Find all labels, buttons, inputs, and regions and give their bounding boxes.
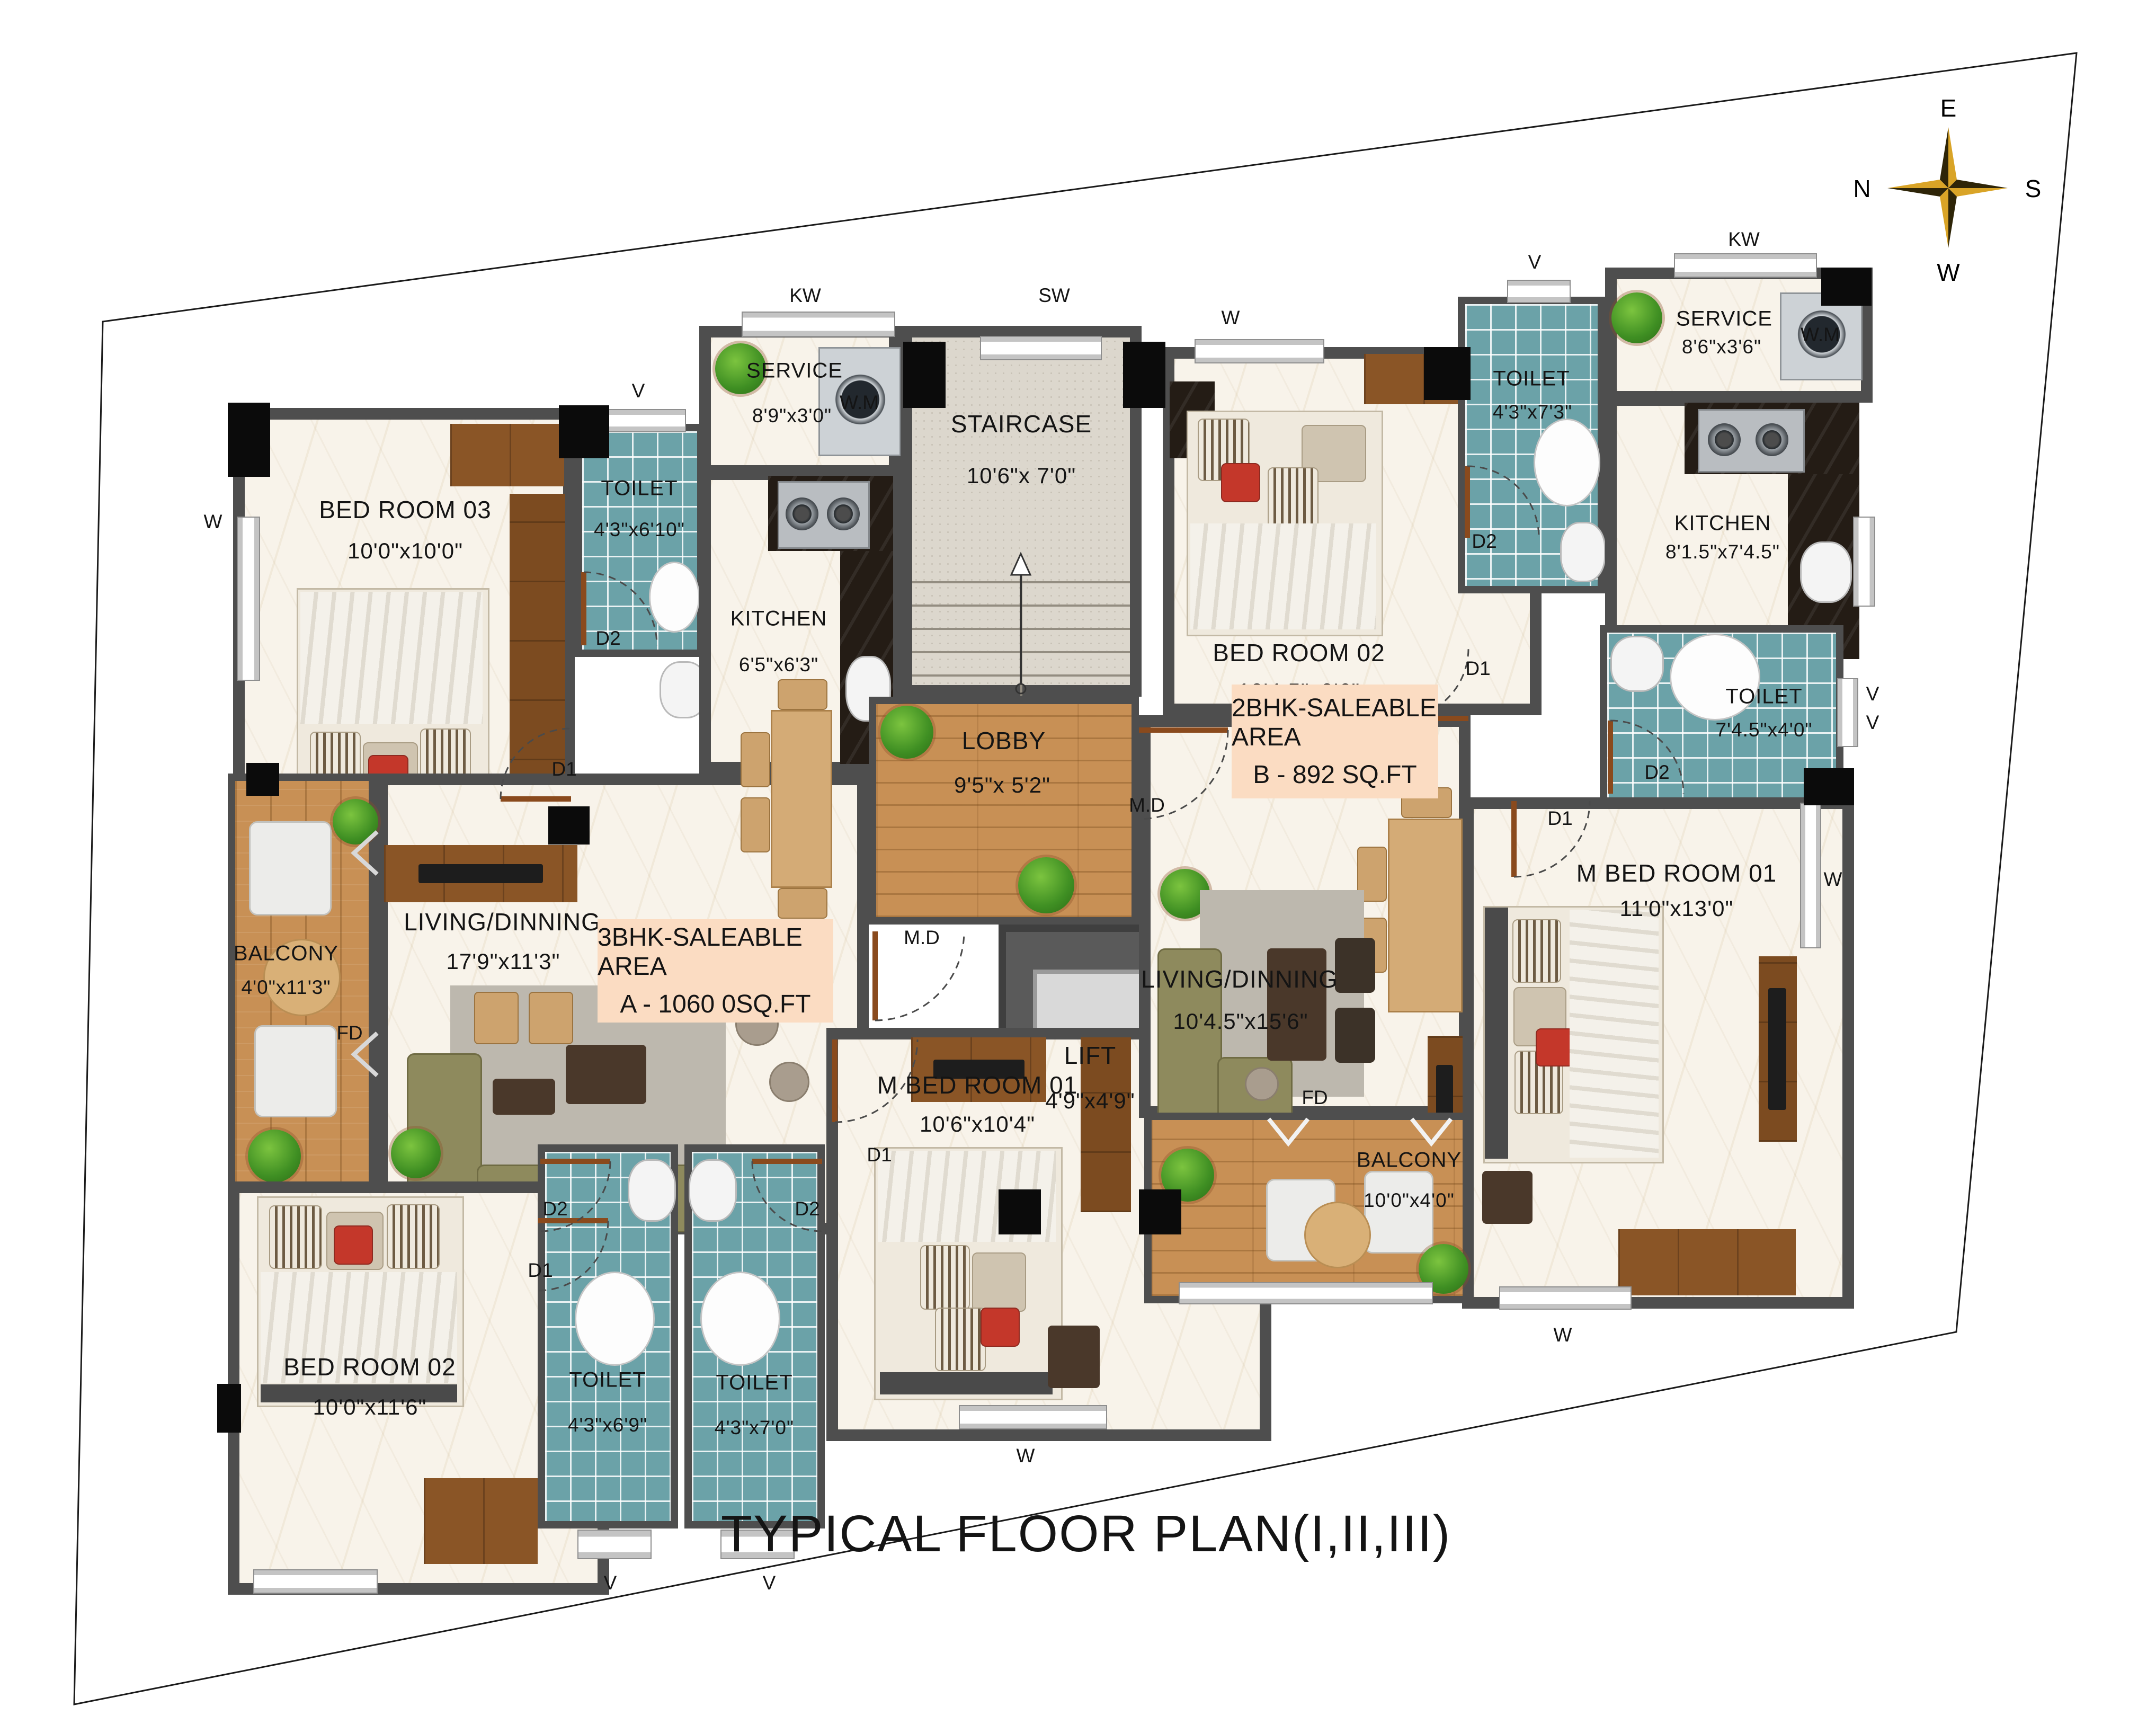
saleable-area-box-3bhk: 3BHK-SALEABLE AREA A - 1060 0SQ.FT xyxy=(598,919,833,1023)
door-tag-d1: D1 xyxy=(1465,657,1490,680)
saleable-area-line: 2BHK-SALEABLE AREA xyxy=(1232,694,1438,752)
room-label: BED ROOM 02 xyxy=(1213,638,1385,667)
door-tag-fd: FD xyxy=(336,1022,362,1044)
washing-machine-tag: W.M xyxy=(1801,324,1840,346)
door-tag-md: M.D xyxy=(904,927,940,949)
room-dims: 6'5"x6'3" xyxy=(739,654,818,676)
window-tag-w: W xyxy=(1017,1445,1035,1467)
room-dims: 4'3"x7'3" xyxy=(1493,401,1572,423)
door-tag-d2: D2 xyxy=(542,1198,567,1220)
vent-tag-v: V xyxy=(763,1572,776,1594)
room-dims: 10'0"x10'0" xyxy=(348,538,463,564)
room-dims: 4'3"x6'9" xyxy=(568,1414,647,1436)
room-dims: 10'6"x10'4" xyxy=(920,1112,1035,1137)
room-label: TOILET xyxy=(1493,367,1570,391)
vent-tag-v: V xyxy=(632,380,645,402)
page-title: TYPICAL FLOOR PLAN(I,II,III) xyxy=(721,1504,1451,1563)
room-label: SERVICE xyxy=(746,359,843,383)
room-label: TOILET xyxy=(1725,685,1802,709)
room-dims: 8'6"x3'6" xyxy=(1682,336,1761,358)
stair-direction-arrow xyxy=(1011,554,1030,694)
vent-tag-v: V xyxy=(1528,251,1542,273)
door-tag-md: M.D xyxy=(1129,794,1165,816)
room-dims: 11'0"x13'0" xyxy=(1620,896,1734,921)
room-dims: 10'0"x11'6" xyxy=(313,1394,427,1420)
room-label: KITCHEN xyxy=(730,607,827,631)
room-label: BALCONY xyxy=(1357,1149,1462,1172)
room-dims: 4'0"x11'3" xyxy=(241,976,331,999)
saleable-area-box-2bhk: 2BHK-SALEABLE AREA B - 892 SQ.FT xyxy=(1232,685,1438,798)
door-tag-d2: D2 xyxy=(595,627,620,650)
room-label: M BED ROOM 01 xyxy=(877,1071,1078,1099)
vent-tag-v: V xyxy=(604,1572,617,1594)
room-label: M BED ROOM 01 xyxy=(1576,859,1777,887)
room-dims: 4'3"x7'0" xyxy=(715,1417,794,1439)
window-tag-w: W xyxy=(1222,307,1240,329)
room-dims: 4'3"x6'10" xyxy=(594,519,685,541)
room-dims: 8'9"x3'0" xyxy=(752,405,832,427)
room-dims: 7'4.5"x4'0" xyxy=(1715,719,1812,741)
room-label: LIVING/DINNING xyxy=(1141,965,1338,993)
room-label: SERVICE xyxy=(1676,307,1772,331)
room-label: LIVING/DINNING xyxy=(404,908,601,936)
window-tag-kw: KW xyxy=(1728,228,1760,251)
door-tag-d1: D1 xyxy=(528,1259,553,1282)
room-label: KITCHEN xyxy=(1674,512,1771,536)
door-tag-d2: D2 xyxy=(795,1198,819,1220)
door-swing-arc xyxy=(501,466,1683,1291)
room-label: BED ROOM 03 xyxy=(319,495,491,524)
door-tag-d1: D1 xyxy=(551,758,576,780)
room-label: TOILET xyxy=(601,477,678,501)
window-tag-sw: SW xyxy=(1038,285,1070,307)
saleable-area-line: B - 892 SQ.FT xyxy=(1253,760,1416,789)
vent-tag-v: V xyxy=(1866,712,1879,734)
saleable-area-line: 3BHK-SALEABLE AREA xyxy=(598,923,833,981)
door-tag-d1: D1 xyxy=(1547,807,1572,830)
room-dims: 8'1.5"x7'4.5" xyxy=(1665,541,1780,563)
floor-plan-canvas: E N S W xyxy=(0,0,2156,1733)
room-label: TOILET xyxy=(716,1371,792,1395)
room-dims: 17'9"x11'3" xyxy=(447,949,560,974)
room-dims: 9'5"x 5'2" xyxy=(954,772,1050,798)
room-dims: 10'4.5"x15'6" xyxy=(1173,1009,1308,1034)
room-label: BED ROOM 02 xyxy=(283,1353,456,1381)
room-label: LOBBY xyxy=(962,726,1046,755)
door-tag-fd: FD xyxy=(1302,1087,1328,1109)
saleable-area-line: A - 1060 0SQ.FT xyxy=(620,990,810,1019)
washing-machine-tag: W.M xyxy=(840,392,879,414)
room-label: BALCONY xyxy=(234,942,338,966)
vent-tag-v: V xyxy=(1866,683,1879,705)
window-tag-kw: KW xyxy=(789,285,821,307)
room-label: TOILET xyxy=(569,1368,646,1392)
room-label: LIFT xyxy=(1064,1041,1117,1070)
doors-overlay xyxy=(0,0,2156,1733)
door-tag-d2: D2 xyxy=(1472,530,1496,553)
room-dims: 10'6"x 7'0" xyxy=(967,463,1076,488)
room-dims: 10'0"x4'0" xyxy=(1364,1189,1455,1212)
window-tag-w: W xyxy=(1554,1324,1572,1346)
door-tag-d1: D1 xyxy=(867,1144,892,1166)
door-tag-d2: D2 xyxy=(1644,761,1669,784)
room-label: STAIRCASE xyxy=(951,410,1092,438)
window-tag-w: W xyxy=(204,511,222,533)
window-tag-w: W xyxy=(1824,868,1842,891)
